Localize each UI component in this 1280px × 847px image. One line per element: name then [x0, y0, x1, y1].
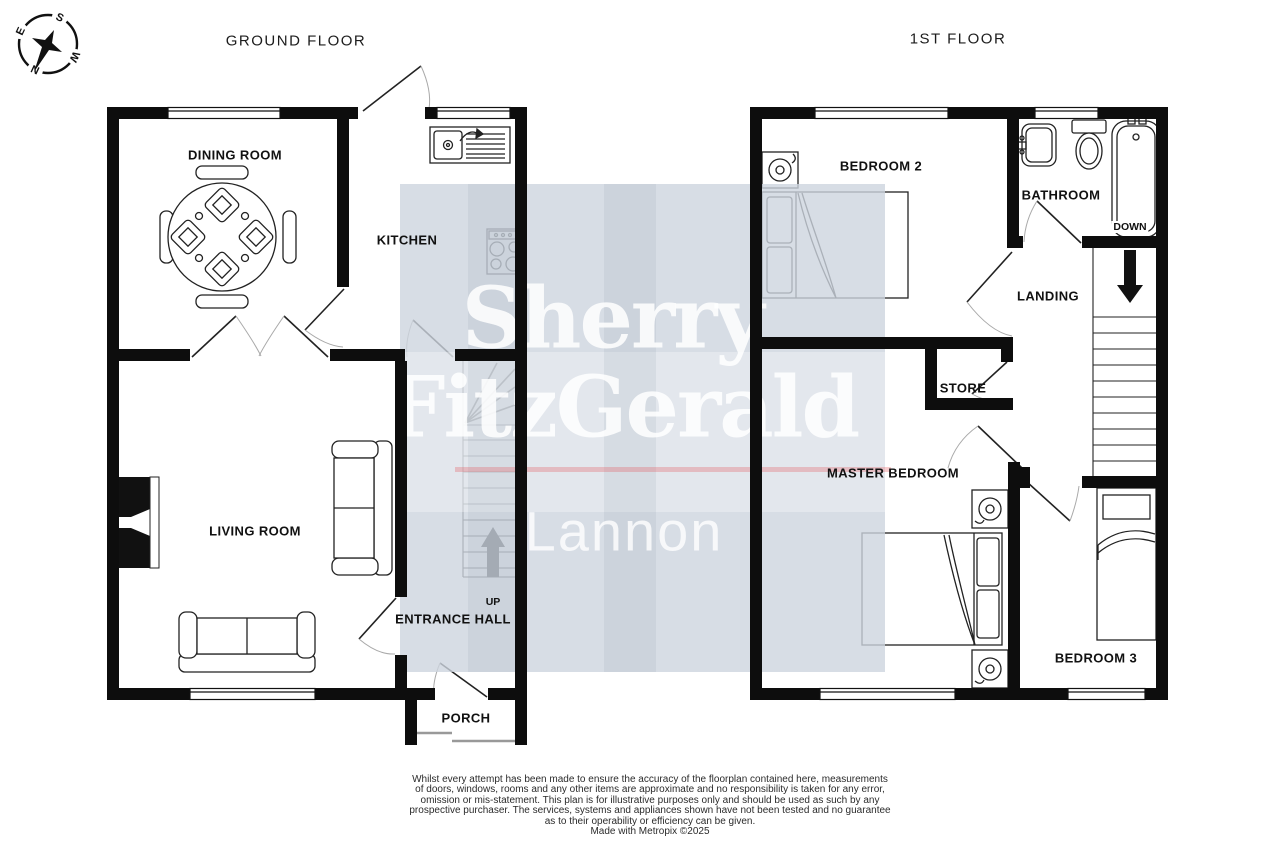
- porch-threshold: [413, 733, 523, 741]
- bedside-table-icon: [762, 152, 798, 188]
- door-leaf: [967, 201, 1081, 521]
- fireplace-icon: [119, 477, 159, 568]
- sofa-icon: [332, 441, 392, 575]
- compass-rose-icon: S W N E: [0, 0, 110, 100]
- dining-table-icon: [160, 166, 296, 308]
- wash-basin-icon: [1018, 124, 1056, 166]
- single-bed-icon: [1097, 488, 1156, 640]
- bedside-table-icon: [972, 490, 1008, 528]
- sofa-icon: [179, 612, 315, 672]
- door-swing-arc: [236, 66, 440, 697]
- toilet-icon: [1072, 120, 1106, 169]
- stairs-down-icon: [1093, 248, 1156, 476]
- kitchen-sink-icon: [430, 127, 510, 163]
- door-swing-arc: [948, 201, 1079, 521]
- floorplan-graphics: [0, 0, 1280, 847]
- double-bed-icon: [762, 192, 908, 298]
- floorplan-page: Sherry FitzGerald Lannon: [0, 0, 1280, 847]
- bedside-table-icon: [972, 650, 1008, 688]
- bathtub-icon: [1112, 117, 1160, 237]
- stairs-up-icon: [463, 361, 515, 577]
- cooker-hob-icon: [487, 229, 523, 274]
- double-bed-icon: [862, 533, 1002, 645]
